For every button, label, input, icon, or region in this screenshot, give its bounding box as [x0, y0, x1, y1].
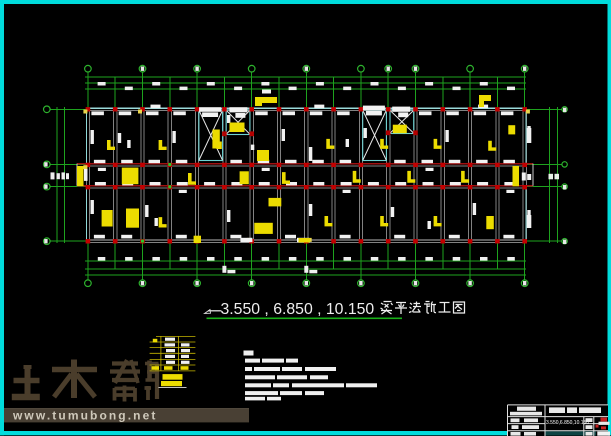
svg-text:3.550 , 6.850 , 10.150: 3.550 , 6.850 , 10.150: [221, 301, 375, 318]
svg-text:www.tumubong.net: www.tumubong.net: [12, 408, 157, 422]
svg-text:3.550,6.850,10.150: 3.550,6.850,10.150: [546, 420, 589, 426]
